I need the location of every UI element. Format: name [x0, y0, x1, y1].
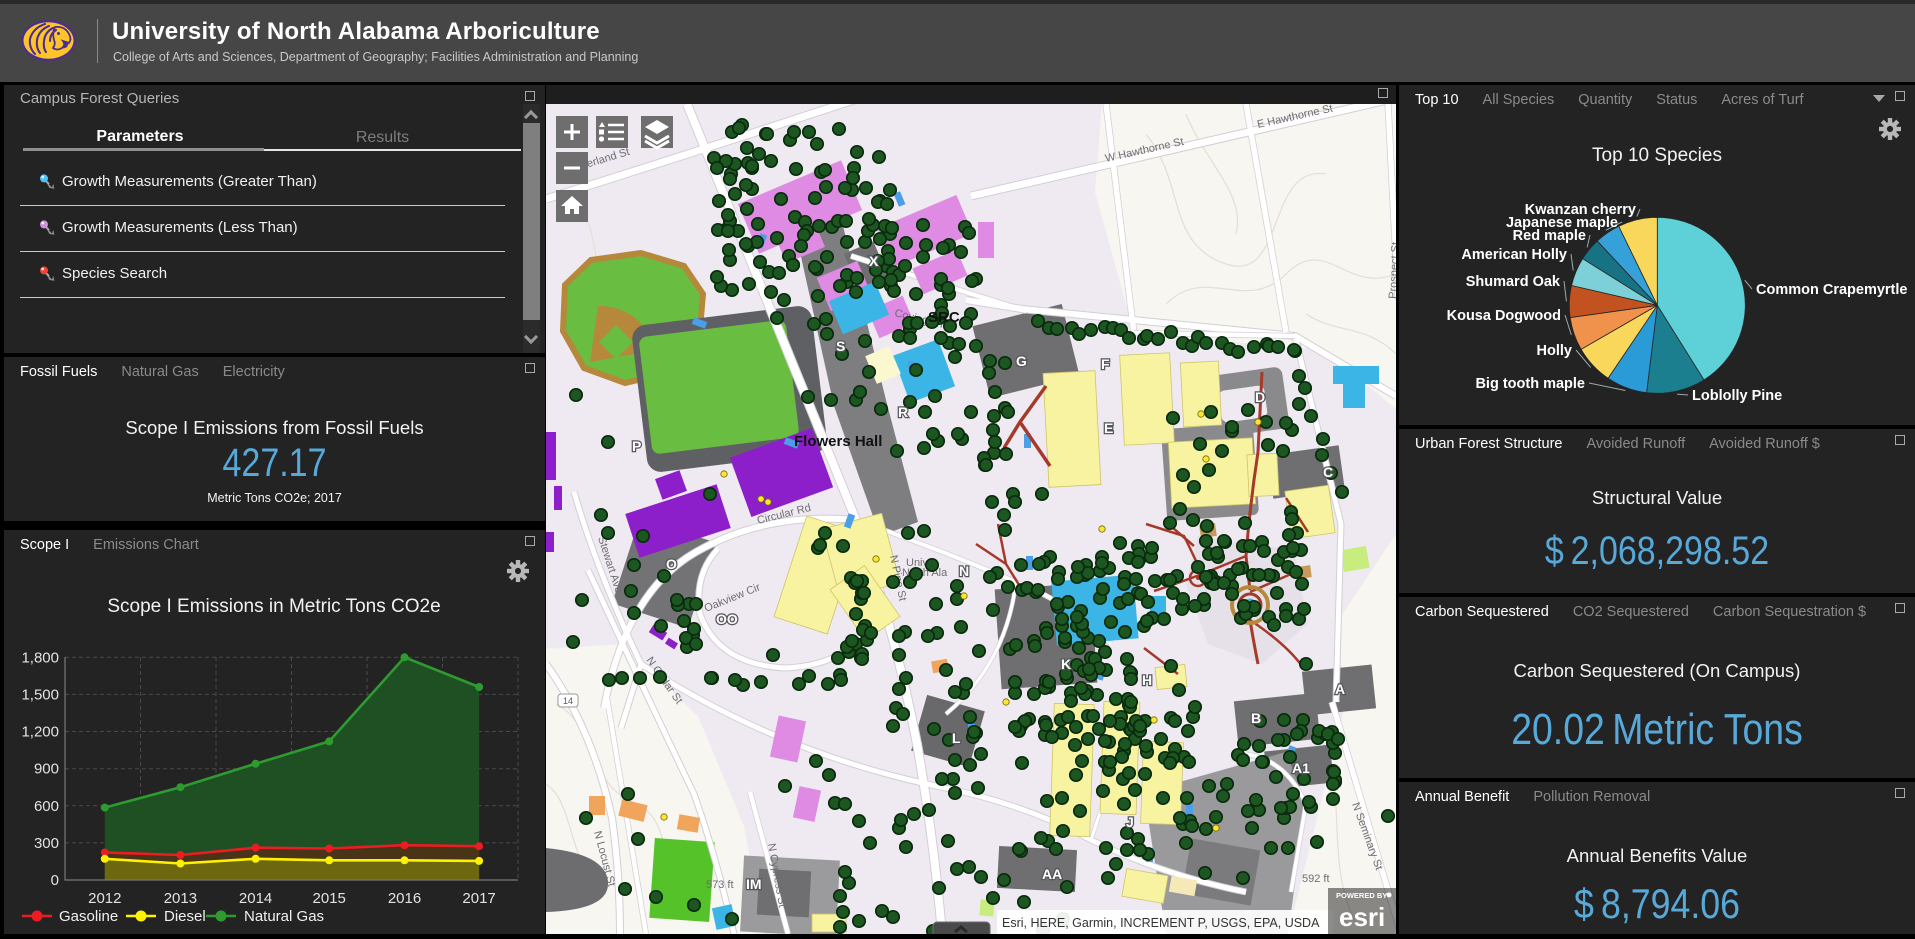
svg-text:J: J [1126, 814, 1134, 830]
svg-text:X: X [869, 253, 879, 269]
svg-text:Diesel: Diesel [164, 908, 206, 925]
svg-text:2017: 2017 [462, 890, 495, 907]
svg-text:2015: 2015 [313, 890, 346, 907]
svg-text:N: N [959, 563, 969, 579]
svg-text:F: F [1101, 356, 1110, 372]
svg-text:E: E [1104, 420, 1113, 436]
svg-text:1,800: 1,800 [21, 649, 59, 666]
svg-text:A: A [1335, 681, 1345, 697]
svg-text:R: R [898, 404, 908, 420]
svg-text:IM: IM [746, 876, 762, 892]
svg-text:O: O [666, 556, 677, 572]
svg-text:Esri, HERE, Garmin, INCREMENT: Esri, HERE, Garmin, INCREMENT P, USGS, E… [1002, 916, 1320, 930]
svg-text:600: 600 [34, 798, 59, 815]
svg-text:2014: 2014 [239, 890, 272, 907]
svg-text:2013: 2013 [164, 890, 197, 907]
svg-text:Natural Gas: Natural Gas [244, 908, 324, 925]
svg-text:1,200: 1,200 [21, 724, 59, 741]
svg-text:14: 14 [563, 696, 573, 706]
svg-text:H: H [1142, 672, 1152, 688]
svg-text:Scope I Emissions in Metric To: Scope I Emissions in Metric Tons CO2e [107, 596, 440, 617]
svg-text:Red maple: Red maple [1513, 228, 1586, 244]
svg-text:Shumard Oak: Shumard Oak [1466, 274, 1561, 290]
svg-text:C: C [1323, 464, 1333, 480]
svg-text:Holly: Holly [1537, 343, 1572, 359]
svg-text:P: P [632, 438, 641, 454]
svg-text:A1: A1 [1292, 760, 1310, 776]
svg-text:AA: AA [1042, 866, 1062, 882]
svg-text:K: K [1061, 656, 1071, 672]
svg-text:Loblolly Pine: Loblolly Pine [1692, 388, 1782, 404]
svg-text:0: 0 [51, 872, 59, 889]
svg-text:OO: OO [716, 611, 738, 627]
svg-text:Big tooth maple: Big tooth maple [1475, 376, 1585, 392]
svg-text:1,500: 1,500 [21, 686, 59, 703]
svg-text:G: G [1016, 353, 1027, 369]
svg-text:esri: esri [1339, 902, 1385, 932]
svg-text:B: B [1251, 710, 1261, 726]
svg-text:592 ft: 592 ft [1302, 873, 1330, 885]
svg-text:L: L [952, 730, 961, 746]
svg-text:900: 900 [34, 761, 59, 778]
svg-text:POWERED BY: POWERED BY [1336, 891, 1387, 900]
svg-text:Top 10 Species: Top 10 Species [1592, 145, 1722, 166]
svg-text:Gasoline: Gasoline [59, 908, 118, 925]
svg-text:D: D [1255, 389, 1265, 405]
svg-text:S: S [836, 338, 845, 354]
svg-text:2012: 2012 [88, 890, 121, 907]
svg-text:573 ft: 573 ft [706, 879, 734, 891]
svg-text:Common Crapemyrtle: Common Crapemyrtle [1756, 282, 1907, 298]
svg-text:SRC: SRC [928, 309, 960, 326]
svg-text:2016: 2016 [388, 890, 421, 907]
svg-text:300: 300 [34, 835, 59, 852]
svg-text:Flowers Hall: Flowers Hall [794, 433, 882, 450]
svg-text:American Holly: American Holly [1461, 247, 1567, 263]
svg-text:Kousa Dogwood: Kousa Dogwood [1447, 308, 1561, 324]
